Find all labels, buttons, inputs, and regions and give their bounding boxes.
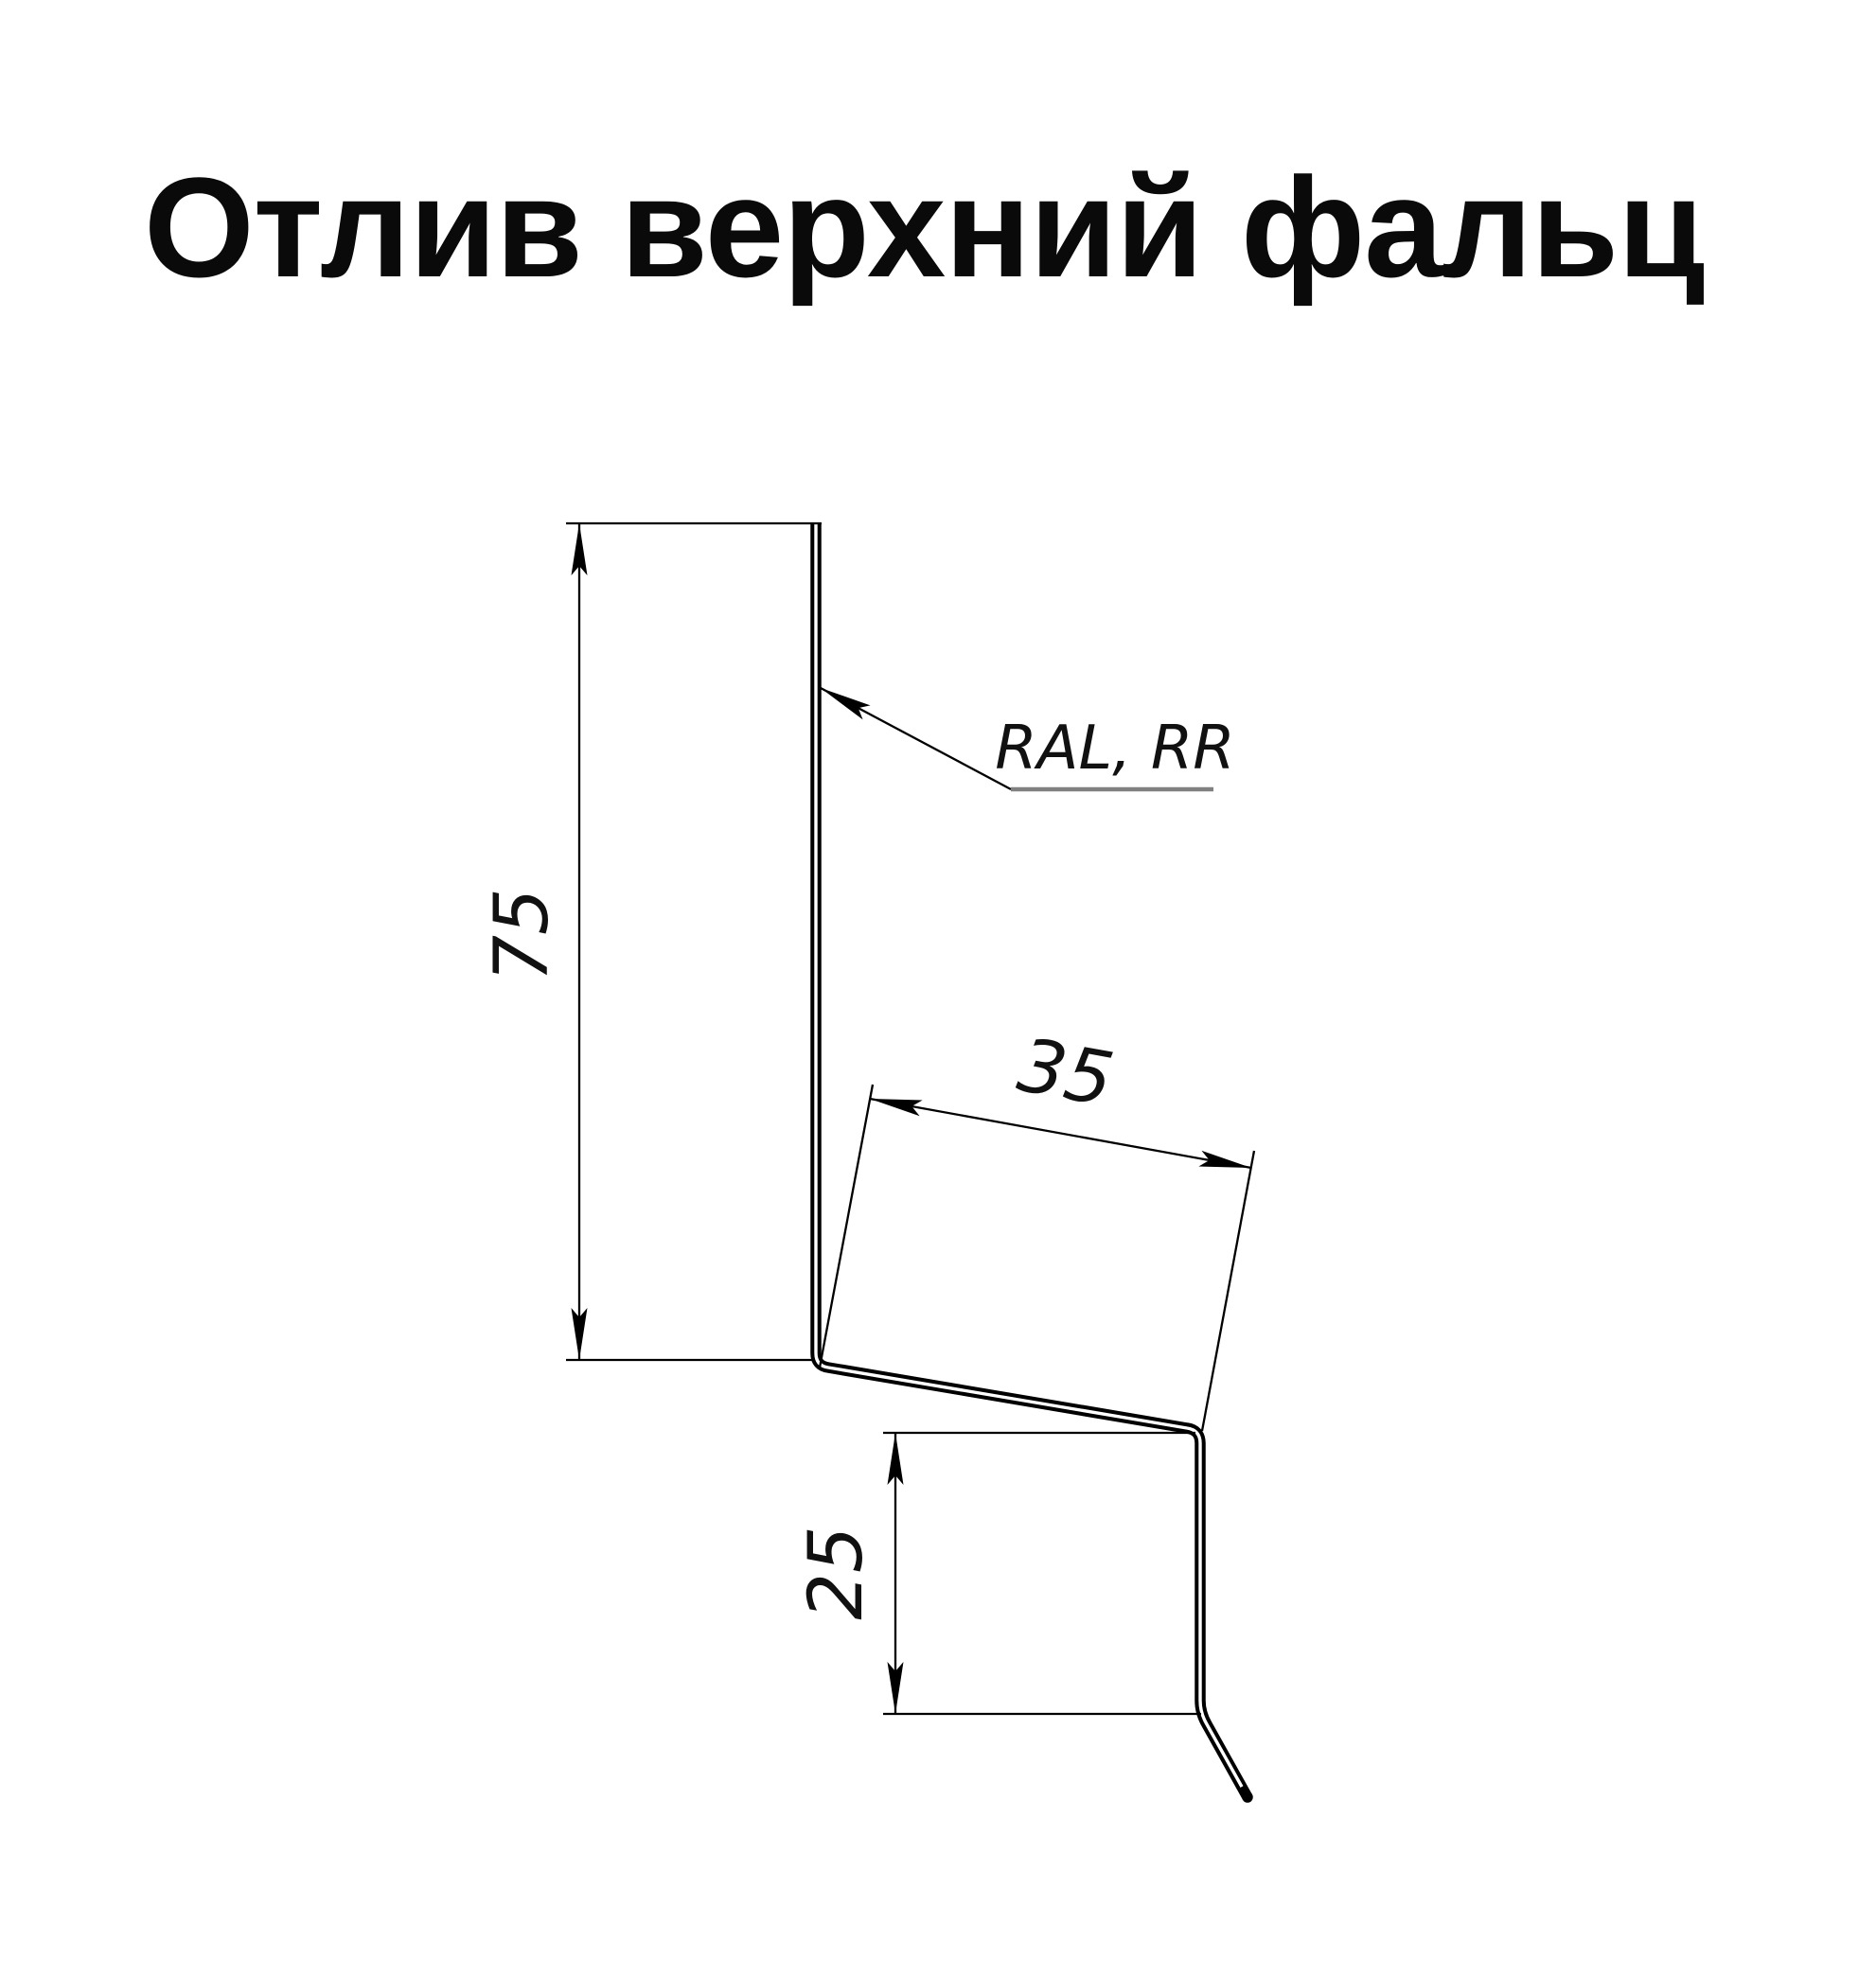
hem-tip [1242, 1792, 1253, 1803]
dim-25-label: 25 [794, 1526, 879, 1619]
material-leader: RAL, RR [817, 680, 1235, 789]
dim-75-label: 75 [480, 888, 565, 981]
dimension-25 [883, 1433, 1201, 1714]
dim-35-arrow-left [868, 1091, 922, 1117]
dimension-75 [566, 523, 822, 1360]
dim-35-ext-right [1202, 1151, 1254, 1431]
drawing-canvas: 75 35 25 [0, 0, 1876, 1977]
material-label: RAL, RR [995, 714, 1235, 784]
dim-35-ext-left [820, 1085, 873, 1368]
drawing-page: Отлив верхний фальц 75 [0, 0, 1876, 1977]
dim-35-label: 35 [1012, 1023, 1120, 1123]
leader-arrow [817, 680, 871, 719]
dim-35-arrow-right [1198, 1151, 1252, 1176]
